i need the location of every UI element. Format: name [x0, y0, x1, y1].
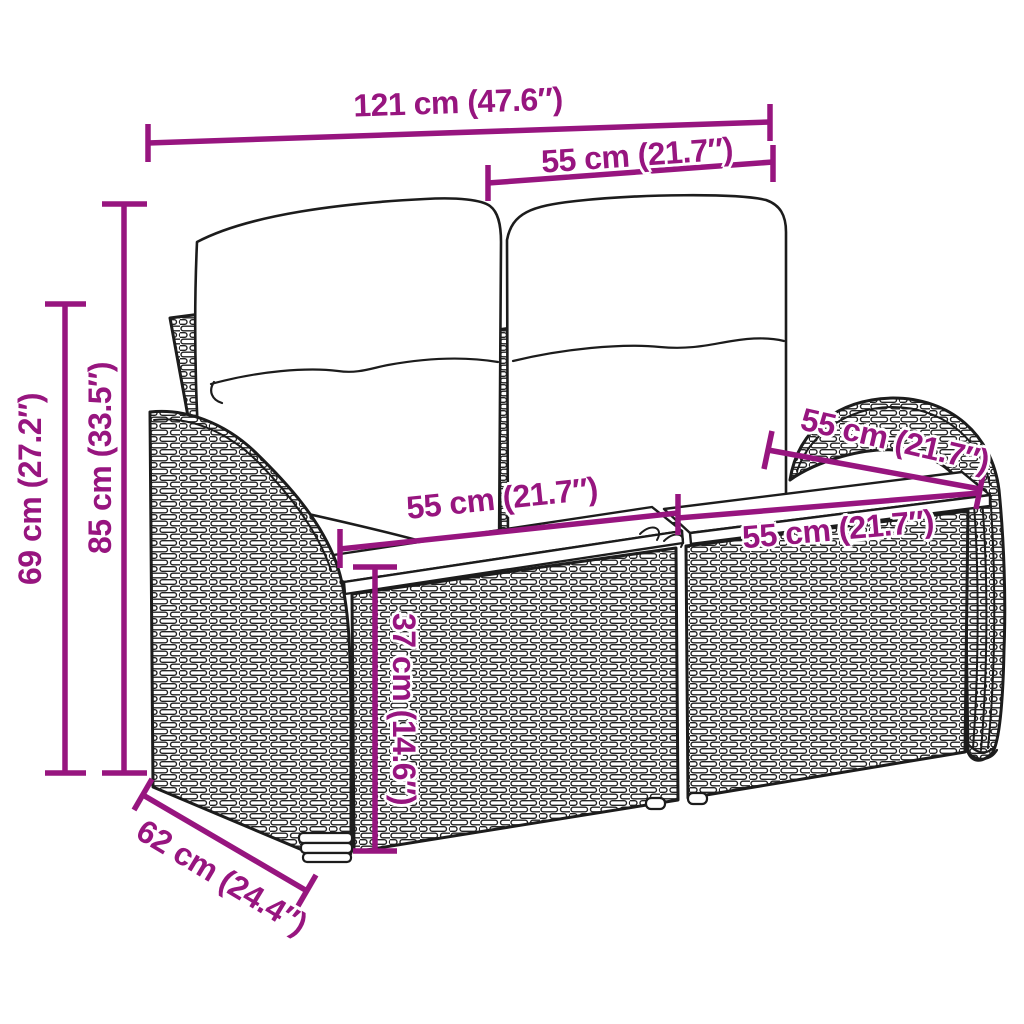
dim-label-total-height: 85 cm (33.5″)	[84, 362, 116, 554]
dim-label-seat-height: 37 cm (14.6″)	[388, 613, 420, 805]
dim-label-total-width: 121 cm (47.6″)	[353, 82, 563, 121]
dim-label-armrest-height: 69 cm (27.2″)	[14, 393, 46, 585]
product-dimension-diagram: 121 cm (47.6″) 55 cm (21.7″) 85 cm (33.5…	[0, 0, 1024, 1024]
base-front-right	[686, 511, 968, 798]
